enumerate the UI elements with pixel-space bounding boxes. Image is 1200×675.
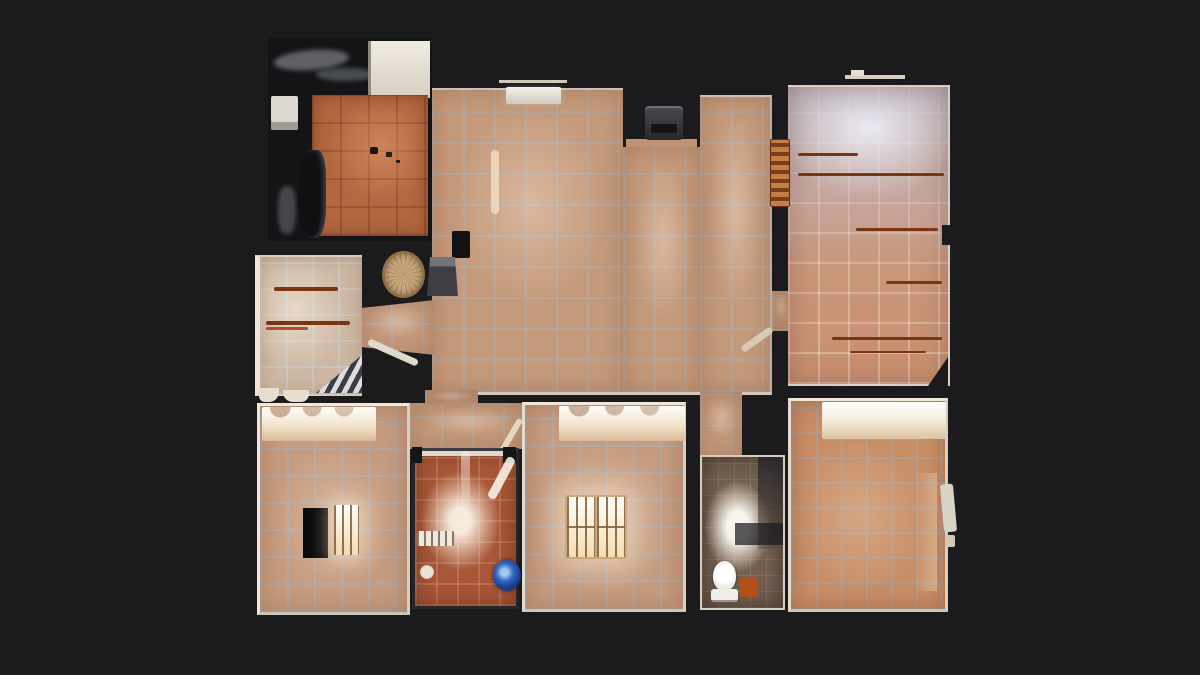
light-streak [487,456,517,501]
barred-window [565,495,627,559]
chair [427,257,458,296]
window-sill [506,87,561,104]
toilet [713,561,736,591]
wall-fragment [259,388,279,402]
window-pane [597,497,625,557]
floor-scratch [266,321,350,325]
floor-scratch [266,327,308,330]
floor-scratch [850,351,926,353]
wall-notch [942,225,950,245]
doorway-entry[interactable] [360,299,434,356]
floor-scratch [274,287,338,291]
bath-mat [740,578,758,597]
barred-window [334,505,359,555]
floor-scratch [798,173,944,176]
fireplace-hearth [626,139,697,147]
door-post [412,447,422,463]
floor-light-streak [491,150,499,214]
louvered-shutters [770,139,790,207]
floor-scratch [886,281,942,284]
white-cabinet [368,41,430,98]
shower-screen [735,523,783,545]
room-main-hall-east[interactable] [700,95,772,395]
scan-hole [303,508,328,558]
corridor-bathroom[interactable] [700,392,742,458]
living-room-floor [312,95,428,236]
blue-bucket [493,560,521,591]
room-main-hall-recess[interactable] [623,147,700,395]
wall-light-reflection [915,473,937,591]
wall-corner-cut [928,357,948,386]
ladder [417,531,454,546]
floor-scratch [832,337,942,340]
window-bracket-tab [851,70,864,76]
counter-glint [316,68,376,81]
room-bathroom[interactable] [700,455,785,610]
doorway-right-room[interactable] [772,291,789,331]
closet [262,407,376,441]
counter-glint [278,186,296,234]
floorplan-viewport[interactable] [0,0,1200,675]
room-bedroom-bottom-left[interactable] [257,403,410,615]
curtain-rod [499,80,567,83]
stove-grill [651,124,677,133]
dark-furniture [298,150,326,238]
exterior-fragment [945,535,955,547]
exterior-fragment [940,484,957,533]
window-pane [567,497,595,557]
round-table [382,251,425,298]
floor-scratch [856,228,938,231]
closet [559,406,685,441]
room-bedroom-bottom-middle[interactable] [522,402,686,612]
stove [645,106,683,140]
room-bedroom-bottom-right[interactable] [788,398,948,612]
floor-drain [420,565,434,579]
closet [822,402,946,439]
wall-stub [452,231,470,258]
wall-stain [461,451,470,529]
toilet-tank [711,589,738,602]
room-storage[interactable] [412,448,519,609]
floor-scratch [798,153,858,156]
wall-appliance [271,96,298,130]
room-living-top-left[interactable] [268,38,432,241]
room-right[interactable] [788,85,950,386]
floor-marks [370,147,378,154]
wall-fragment [283,390,309,402]
